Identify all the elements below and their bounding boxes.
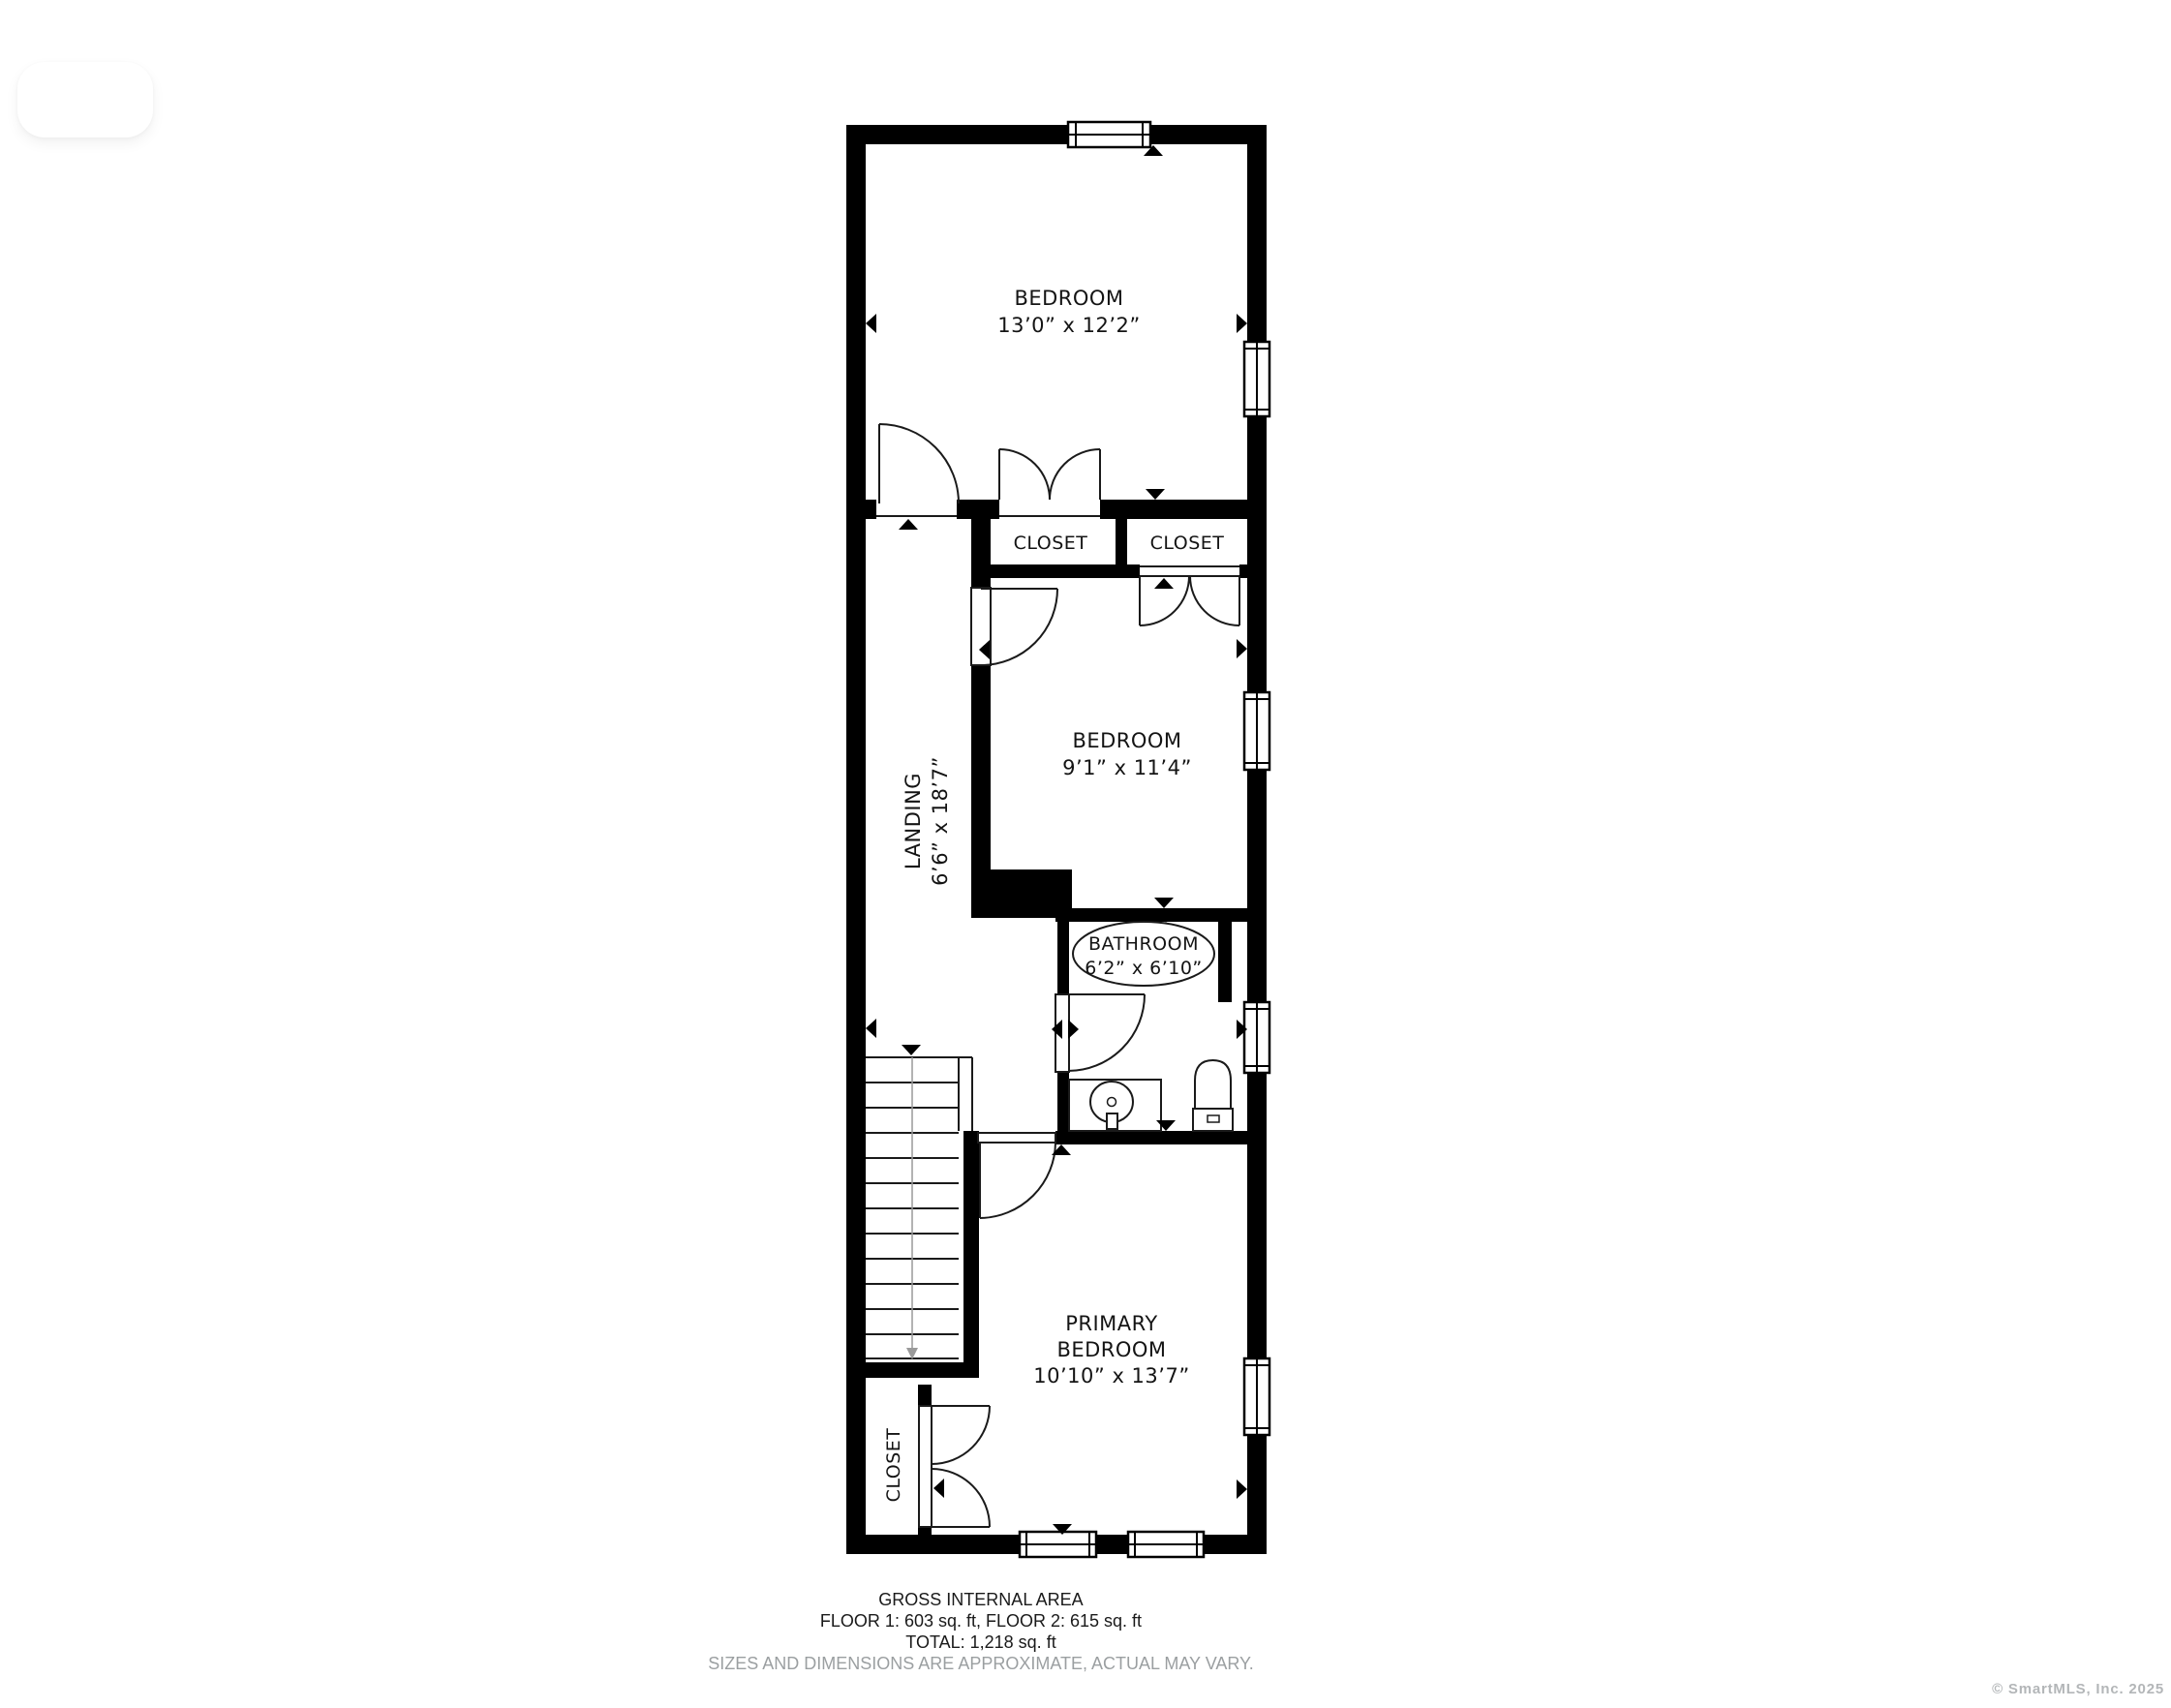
- arrow-left-icon: [933, 1479, 944, 1498]
- wall-outer-bottom: [846, 1535, 1020, 1554]
- gross-area-footer: GROSS INTERNAL AREA FLOOR 1: 603 sq. ft,…: [439, 1589, 1523, 1674]
- double-door-closet1: [999, 449, 1100, 516]
- wall-closet3-stub: [918, 1527, 932, 1540]
- staircase: [866, 1057, 972, 1359]
- wall-primary-top: [1055, 1131, 1267, 1144]
- wall-stairwell: [963, 1131, 979, 1378]
- wall-bedroom1-bottom: [846, 500, 876, 519]
- arrow-up-icon: [899, 519, 918, 530]
- wall-outer-top: [866, 125, 1068, 144]
- wall-landing-right: [971, 665, 991, 869]
- room-label-closet-primary: CLOSET: [883, 1428, 904, 1503]
- arrow-up-icon: [1154, 578, 1174, 589]
- wall-outer-bottom: [1204, 1535, 1267, 1554]
- arrow-down-icon: [1154, 898, 1174, 908]
- wall-bedroom1-bottom: [1100, 500, 1267, 519]
- room-dims-bedroom-top: 13’0” x 12’2”: [997, 314, 1141, 337]
- wall-bathroom-left: [1057, 918, 1069, 994]
- room-label-closet-right: CLOSET: [1150, 533, 1225, 554]
- room-label-landing-group: LANDING 6’6” x 18’7”: [902, 756, 952, 886]
- arrow-down-icon: [902, 1045, 921, 1055]
- window: [1128, 1532, 1204, 1557]
- floor-plan-svg: BEDROOM 13’0” x 12’2” CLOSET CLOSET BEDR…: [0, 0, 2171, 1708]
- arrow-right-icon: [1237, 314, 1247, 333]
- footer-title: GROSS INTERNAL AREA: [439, 1589, 1523, 1610]
- room-label-bedroom-middle: BEDROOM: [1072, 729, 1181, 752]
- wall-outer-right: [1247, 770, 1267, 1002]
- window: [1244, 1358, 1269, 1435]
- room-label-primary-line1: PRIMARY: [1065, 1312, 1158, 1335]
- wall-outer-left: [846, 125, 866, 1554]
- footer-floor-areas: FLOOR 1: 603 sq. ft, FLOOR 2: 615 sq. ft: [439, 1610, 1523, 1632]
- door-primary: [978, 1133, 1055, 1218]
- window: [1244, 342, 1269, 416]
- window: [1068, 122, 1150, 147]
- room-dims-bedroom-middle: 9’1” x 11’4”: [1062, 756, 1192, 779]
- room-label-closet-left: CLOSET: [1014, 533, 1088, 554]
- window: [1020, 1532, 1096, 1557]
- bathroom-fixtures: [1069, 1060, 1233, 1131]
- room-dims-bathroom: 6’2” x 6’10”: [1085, 958, 1203, 979]
- arrow-left-icon: [866, 1019, 876, 1038]
- wall-bathroom-stub: [1218, 918, 1232, 1002]
- room-label-primary-line2: BEDROOM: [1056, 1338, 1166, 1361]
- footer-disclaimer: SIZES AND DIMENSIONS ARE APPROXIMATE, AC…: [439, 1653, 1523, 1674]
- wall-outer-bottom: [1096, 1535, 1128, 1554]
- wall-outer-right: [1247, 1073, 1267, 1358]
- wall-closet-bottom: [971, 564, 1140, 578]
- sink-vanity-icon: [1069, 1080, 1161, 1131]
- window: [1244, 1002, 1269, 1073]
- window: [1244, 692, 1269, 770]
- wall-stairs-bottom: [846, 1362, 979, 1378]
- room-dims-primary: 10’10” x 13’7”: [1033, 1364, 1189, 1388]
- room-label-landing: LANDING: [902, 773, 925, 869]
- wall-outer-right: [1247, 416, 1267, 692]
- arrow-right-icon: [1068, 1020, 1079, 1039]
- wall-closet3-stub: [918, 1385, 932, 1406]
- smartmls-watermark: © SmartMLS, Inc. 2025: [1992, 1681, 2164, 1697]
- arrow-right-icon: [1237, 1479, 1247, 1499]
- wall-outer-right: [1247, 125, 1267, 342]
- room-label-bedroom-top: BEDROOM: [1014, 287, 1123, 310]
- arrow-left-icon: [866, 314, 876, 333]
- arrow-down-icon: [1146, 489, 1165, 500]
- double-door-closet2: [1140, 566, 1239, 625]
- room-dims-landing: 6’6” x 18’7”: [929, 756, 952, 886]
- arrow-right-icon: [1237, 639, 1247, 658]
- bifold-door-closet3: [919, 1406, 990, 1527]
- footer-total-area: TOTAL: 1,218 sq. ft: [439, 1632, 1523, 1653]
- room-label-bathroom: BATHROOM: [1088, 933, 1199, 955]
- wall-closet-divider: [1116, 519, 1127, 564]
- door-bedroom1: [876, 424, 959, 516]
- wall-closet-bottom: [1239, 564, 1267, 578]
- room-label-closet3-group: CLOSET: [883, 1428, 904, 1503]
- toilet-icon: [1193, 1060, 1233, 1131]
- floor-plan-page: BEDROOM 13’0” x 12’2” CLOSET CLOSET BEDR…: [0, 0, 2171, 1708]
